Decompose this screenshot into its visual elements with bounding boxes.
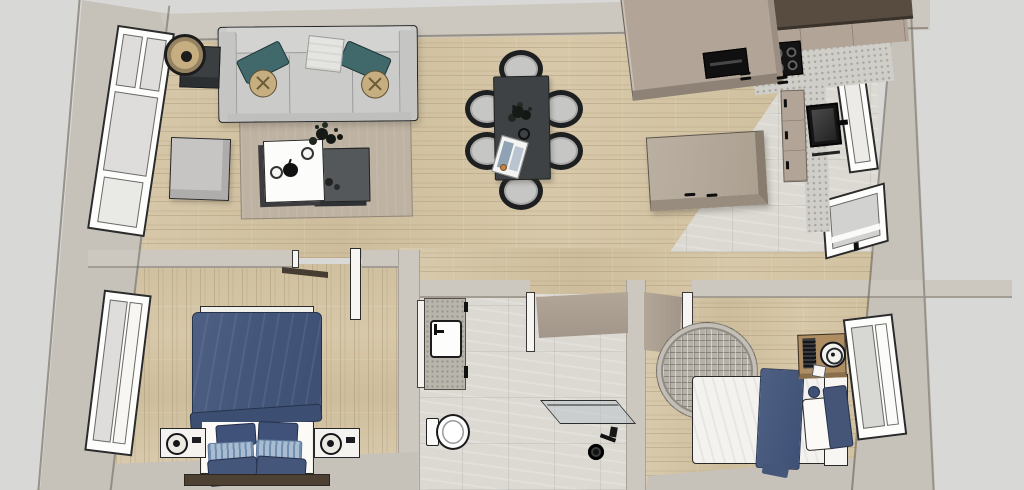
bathroom-sink[interactable] (430, 320, 462, 358)
decor-ring[interactable] (301, 147, 314, 160)
round-tufted-pillow-left[interactable] (249, 69, 277, 97)
sofa-arm-left (219, 32, 238, 120)
round-tufted-pillow-right[interactable] (361, 70, 389, 98)
sofa[interactable] (218, 25, 419, 123)
round-cushion (808, 386, 820, 398)
coffee-table-dark[interactable] (318, 148, 371, 203)
table-lamp[interactable] (166, 433, 188, 455)
bedroom2-bed[interactable] (692, 372, 850, 468)
nightstand-item (192, 437, 201, 443)
window-pane (139, 37, 166, 91)
cabinet-handles (739, 71, 752, 81)
cabinet-handles (776, 75, 789, 85)
toilet[interactable] (426, 414, 472, 450)
kitchen-island[interactable] (646, 130, 768, 211)
toilet-bowl (436, 414, 470, 450)
bedroom2-nightstand[interactable] (797, 333, 847, 379)
wall-mounted-screen[interactable] (806, 102, 842, 147)
square-ottoman[interactable] (169, 137, 231, 201)
vanity-handle-icon (464, 366, 468, 378)
window-pane (97, 177, 143, 228)
notecard (812, 364, 827, 378)
nightstand-item (346, 437, 355, 443)
bathroom-top-wall (404, 280, 530, 298)
floor-lamp[interactable] (164, 34, 206, 76)
bathroom-door-jamb (526, 292, 535, 352)
navy-duvet (192, 312, 322, 418)
bedroom1-door-leaf[interactable] (350, 248, 361, 320)
table-fan[interactable] (820, 341, 847, 368)
sofa-seam (289, 55, 291, 117)
bedroom1-top-wall-left (88, 250, 298, 268)
table-centerpiece-plant[interactable] (512, 106, 524, 118)
window-handle-icon (854, 242, 859, 252)
vanity-side-panel (417, 300, 425, 388)
vanity-handle-icon (464, 302, 468, 312)
nightstand-left[interactable] (160, 428, 206, 458)
throw-blanket[interactable] (305, 35, 345, 73)
apple-decor[interactable] (283, 163, 298, 177)
potted-plant[interactable] (316, 128, 328, 140)
burner-icon (786, 47, 797, 58)
bedroom2-top-wall (692, 280, 1012, 298)
island-handle-icon (684, 193, 695, 197)
floor-plan-render (0, 0, 1024, 490)
window-pane (103, 91, 158, 177)
window-pane (116, 34, 143, 88)
navy-throw-blanket (755, 368, 804, 470)
bathroom-door-leaf[interactable] (536, 292, 628, 338)
decor-spheres[interactable] (325, 178, 333, 186)
shower-head[interactable] (588, 444, 604, 460)
table-lamp[interactable] (320, 433, 342, 455)
nightstand-right[interactable] (314, 428, 360, 458)
decor-ring[interactable] (270, 166, 283, 179)
table-decor-ring[interactable] (518, 128, 530, 140)
bathroom-bedroom2-wall (626, 280, 646, 490)
sofa-front-edge (227, 112, 411, 122)
headboard (184, 474, 330, 486)
bedroom1-door-jamb (292, 250, 299, 268)
base-cabinets-right[interactable] (780, 90, 807, 183)
sofa-arm-right (399, 30, 418, 118)
small-bowl[interactable] (500, 164, 507, 171)
burner-icon (787, 60, 798, 71)
island-handle-icon (706, 193, 717, 197)
bedroom1-bed[interactable] (196, 306, 318, 486)
